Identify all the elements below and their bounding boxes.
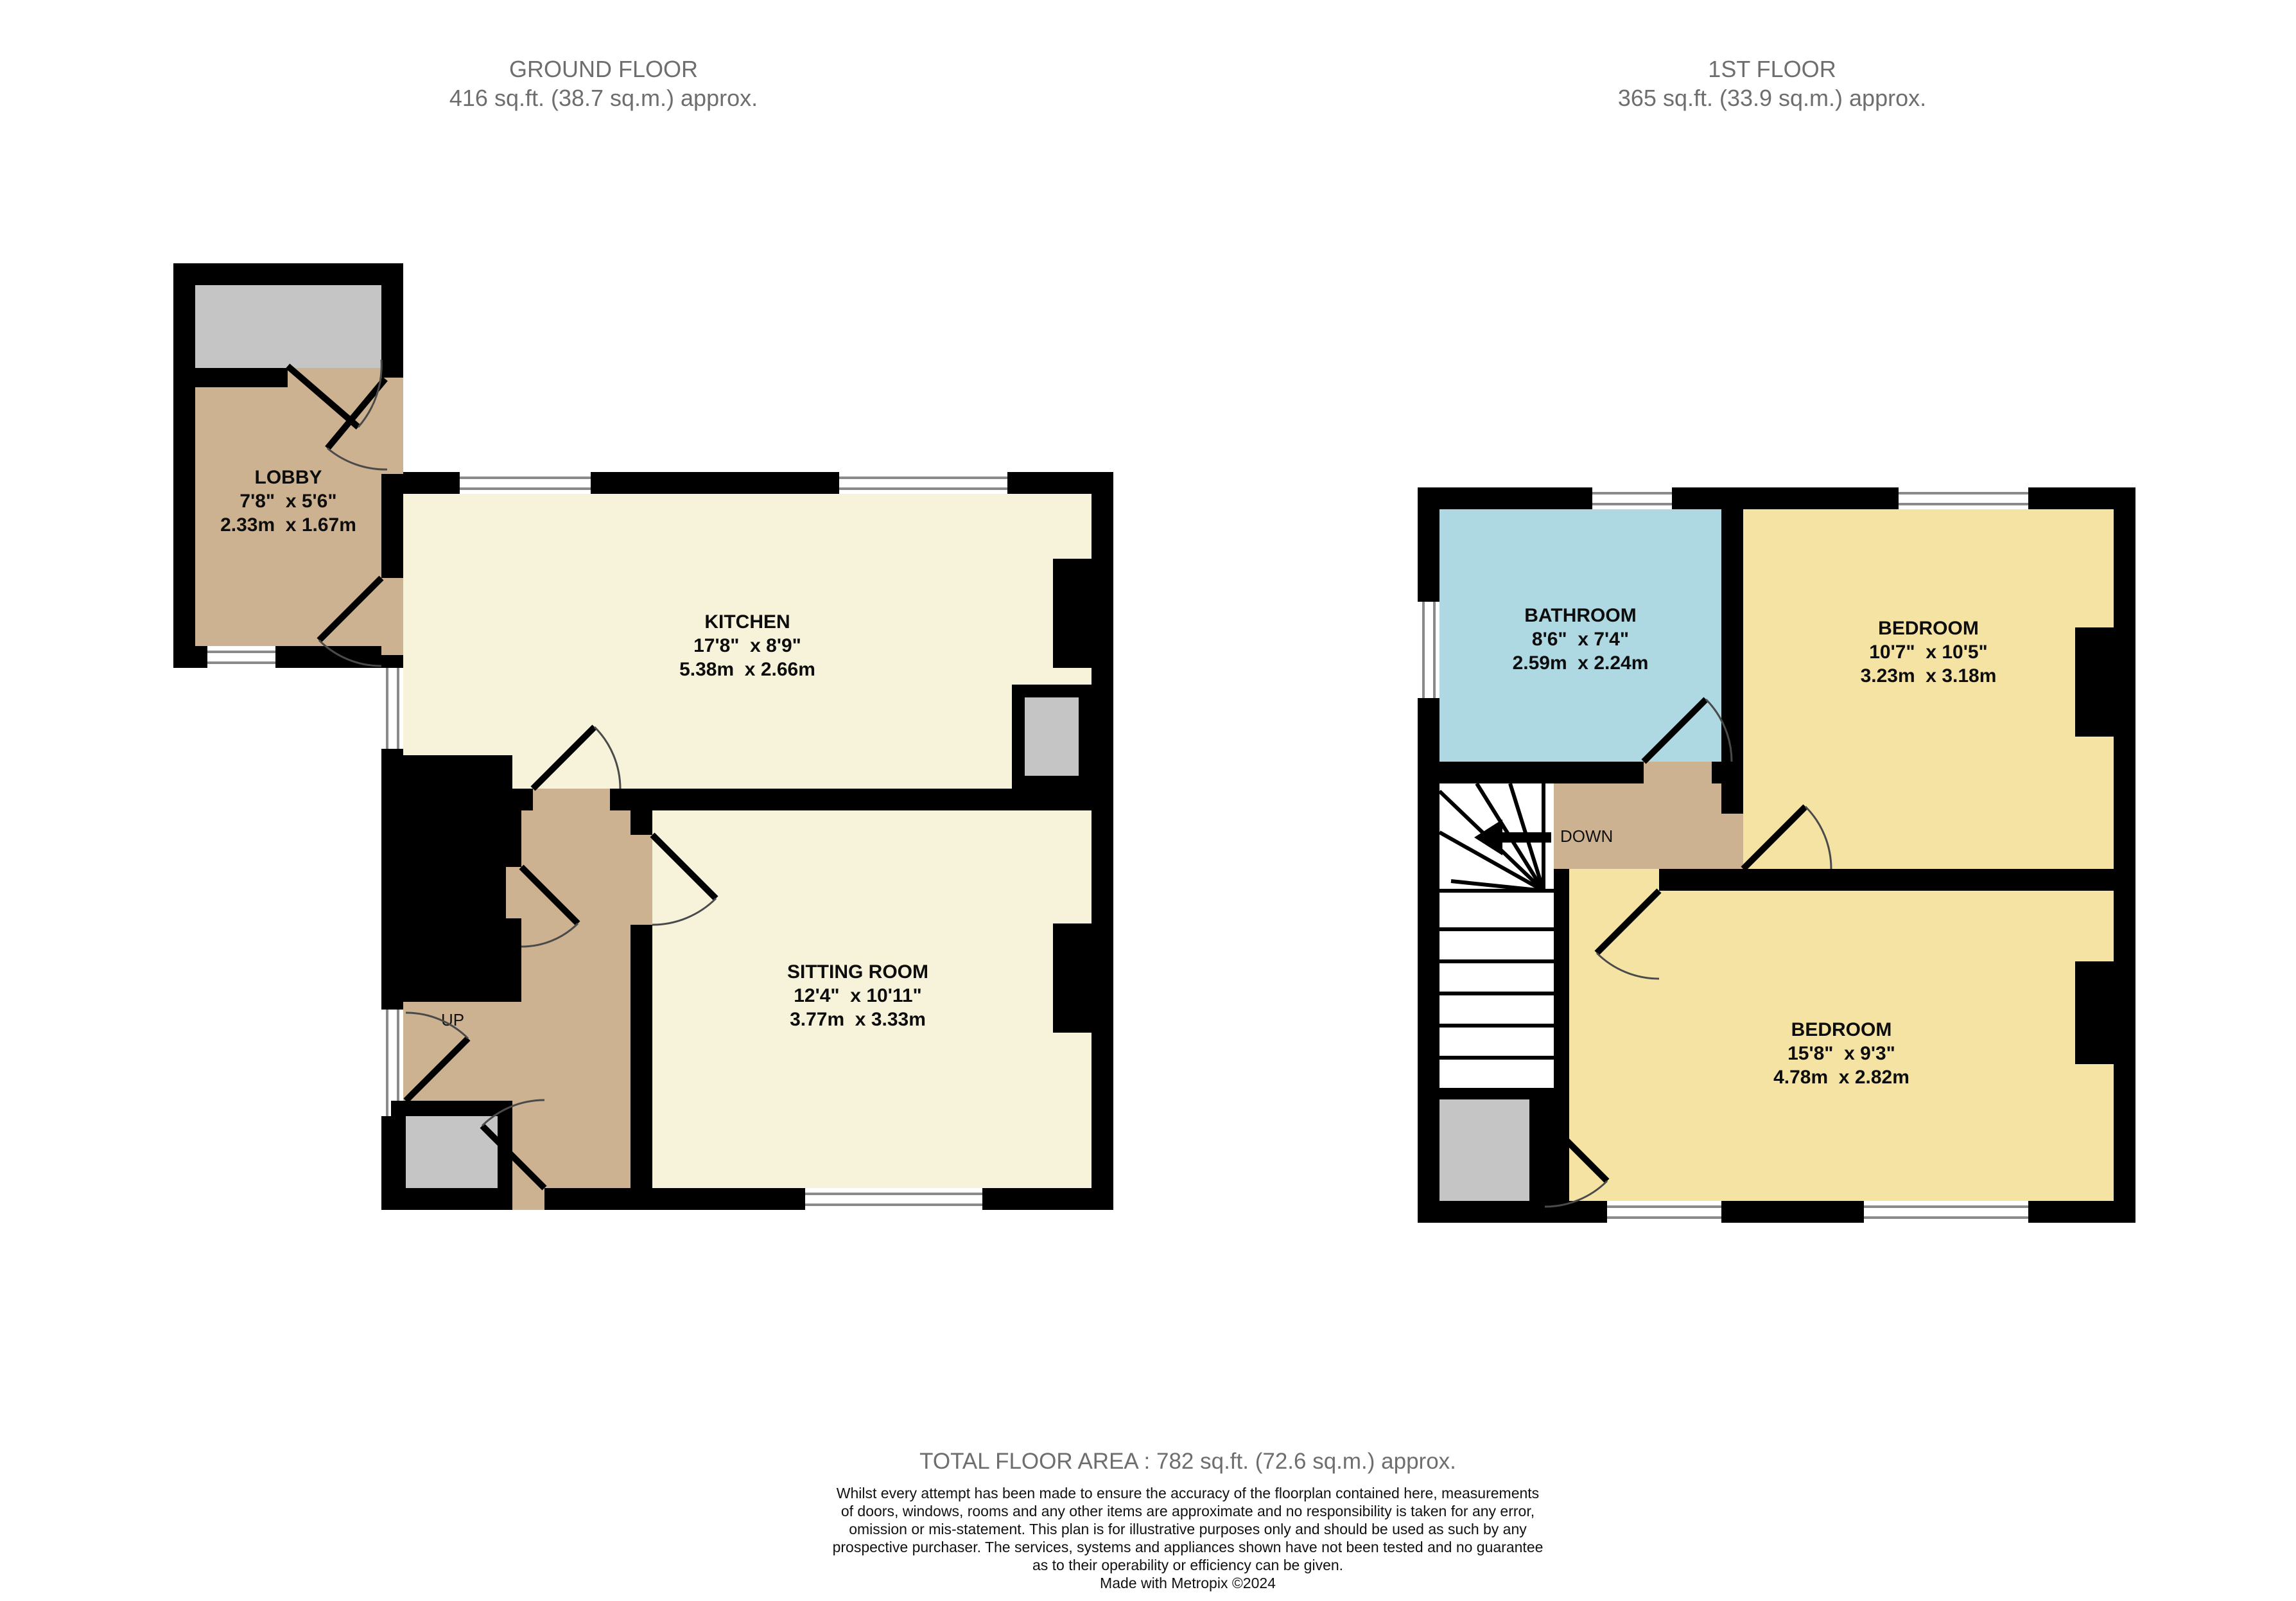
door-opening [1721,814,1743,869]
room-label-bedroom2: BEDROOM 15'8" x 9'3" 4.78m x 2.82m [1569,979,2114,1127]
stairs-down-label: DOWN [1560,823,1676,849]
room-dims-metric: 4.78m x 2.82m [1773,1065,1909,1089]
total-floor-area: TOTAL FLOOR AREA : 782 sq.ft. (72.6 sq.m… [682,1448,1694,1475]
room-name: KITCHEN [704,610,790,634]
room-dims-metric: 3.77m x 3.33m [790,1008,926,1031]
door-opening [1569,869,1659,891]
cupboard-area [1439,1099,1529,1201]
window [1418,602,1439,698]
room-dims-metric: 2.59m x 2.24m [1513,651,1649,675]
window [1899,487,2028,509]
room-dims-imperial: 7'8" x 5'6" [239,489,336,513]
room-name: BEDROOM [1878,617,1979,640]
room-name: BATHROOM [1524,604,1636,627]
room-label-bedroom1: BEDROOM 10'7" x 10'5" 3.23m x 3.18m [1743,578,2114,726]
window [1864,1201,2028,1223]
footer: TOTAL FLOOR AREA : 782 sq.ft. (72.6 sq.m… [682,1448,1694,1592]
room-label-kitchen: KITCHEN 17'8" x 8'9" 5.38m x 2.66m [403,572,1091,719]
room-name: BEDROOM [1791,1018,1892,1042]
stairs-up-label: UP [421,1007,485,1033]
room-label-lobby: LOBBY 7'8" x 5'6" 2.33m x 1.67m [195,424,381,578]
floorplan-page: GROUND FLOOR 416 sq.ft. (38.7 sq.m.) app… [0,0,2296,1601]
room-dims-imperial: 17'8" x 8'9" [693,634,801,658]
room-name: SITTING ROOM [787,960,928,984]
room-dims-imperial: 10'7" x 10'5" [1869,640,1988,664]
window [1607,1201,1721,1223]
room-dims-imperial: 12'4" x 10'11" [794,984,922,1008]
room-dims-imperial: 15'8" x 9'3" [1787,1042,1895,1065]
disclaimer-text: Whilst every attempt has been made to en… [682,1484,1694,1574]
door-opening [1644,762,1712,783]
room-dims-metric: 5.38m x 2.66m [679,658,815,681]
staircase-treads [1439,899,1554,1092]
room-dims-metric: 3.23m x 3.18m [1861,664,1997,688]
room-name: LOBBY [255,466,322,489]
window [1592,487,1672,509]
metropix-credit: Made with Metropix ©2024 [682,1574,1694,1592]
room-label-sitting-room: SITTING ROOM 12'4" x 10'11" 3.77m x 3.33… [652,918,1063,1072]
stairs-down-text: DOWN [1560,827,1613,846]
room-dims-metric: 2.33m x 1.67m [220,513,356,537]
room-label-bathroom: BATHROOM 8'6" x 7'4" 2.59m x 2.24m [1439,565,1721,713]
stairs-up-text: UP [441,1010,464,1030]
room-dims-imperial: 8'6" x 7'4" [1532,627,1629,651]
first-floor-plan: BATHROOM 8'6" x 7'4" 2.59m x 2.24m BEDRO… [0,0,2296,1601]
